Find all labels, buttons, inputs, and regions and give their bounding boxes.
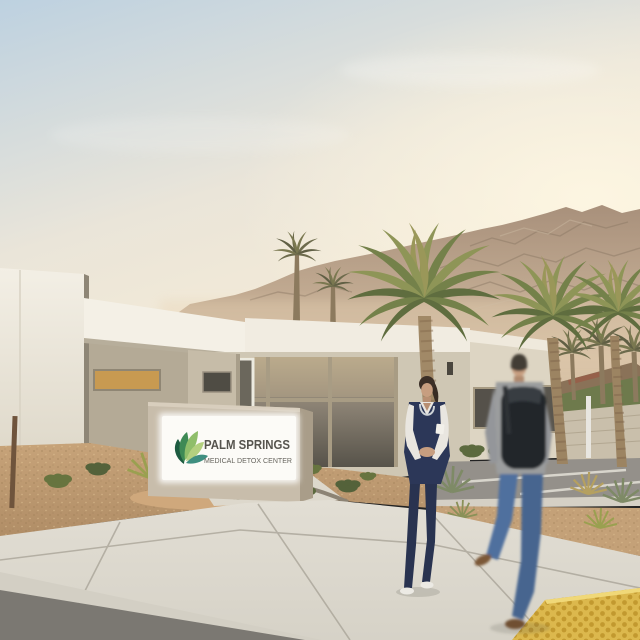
photo-canvas: PALM SPRINGS MEDICAL DETOX CENTER [0,0,640,640]
nurse-shoe [400,588,414,595]
nurse-shoe [421,582,434,589]
sign-post [586,396,591,458]
nurse-hands [419,447,435,457]
cloud-streak [340,54,600,86]
amber-transom-window [94,370,160,390]
sign-title: PALM SPRINGS [204,437,290,452]
sign-side [300,408,313,502]
transom-window [203,372,231,392]
wall-sconce [447,362,453,375]
nurse-face [421,383,433,397]
man-shoe [505,619,525,629]
cloud-streak [50,117,350,153]
sign-subtitle: MEDICAL DETOX CENTER [204,458,292,465]
monument-sign: PALM SPRINGS MEDICAL DETOX CENTER [148,402,313,502]
badge [435,424,444,435]
